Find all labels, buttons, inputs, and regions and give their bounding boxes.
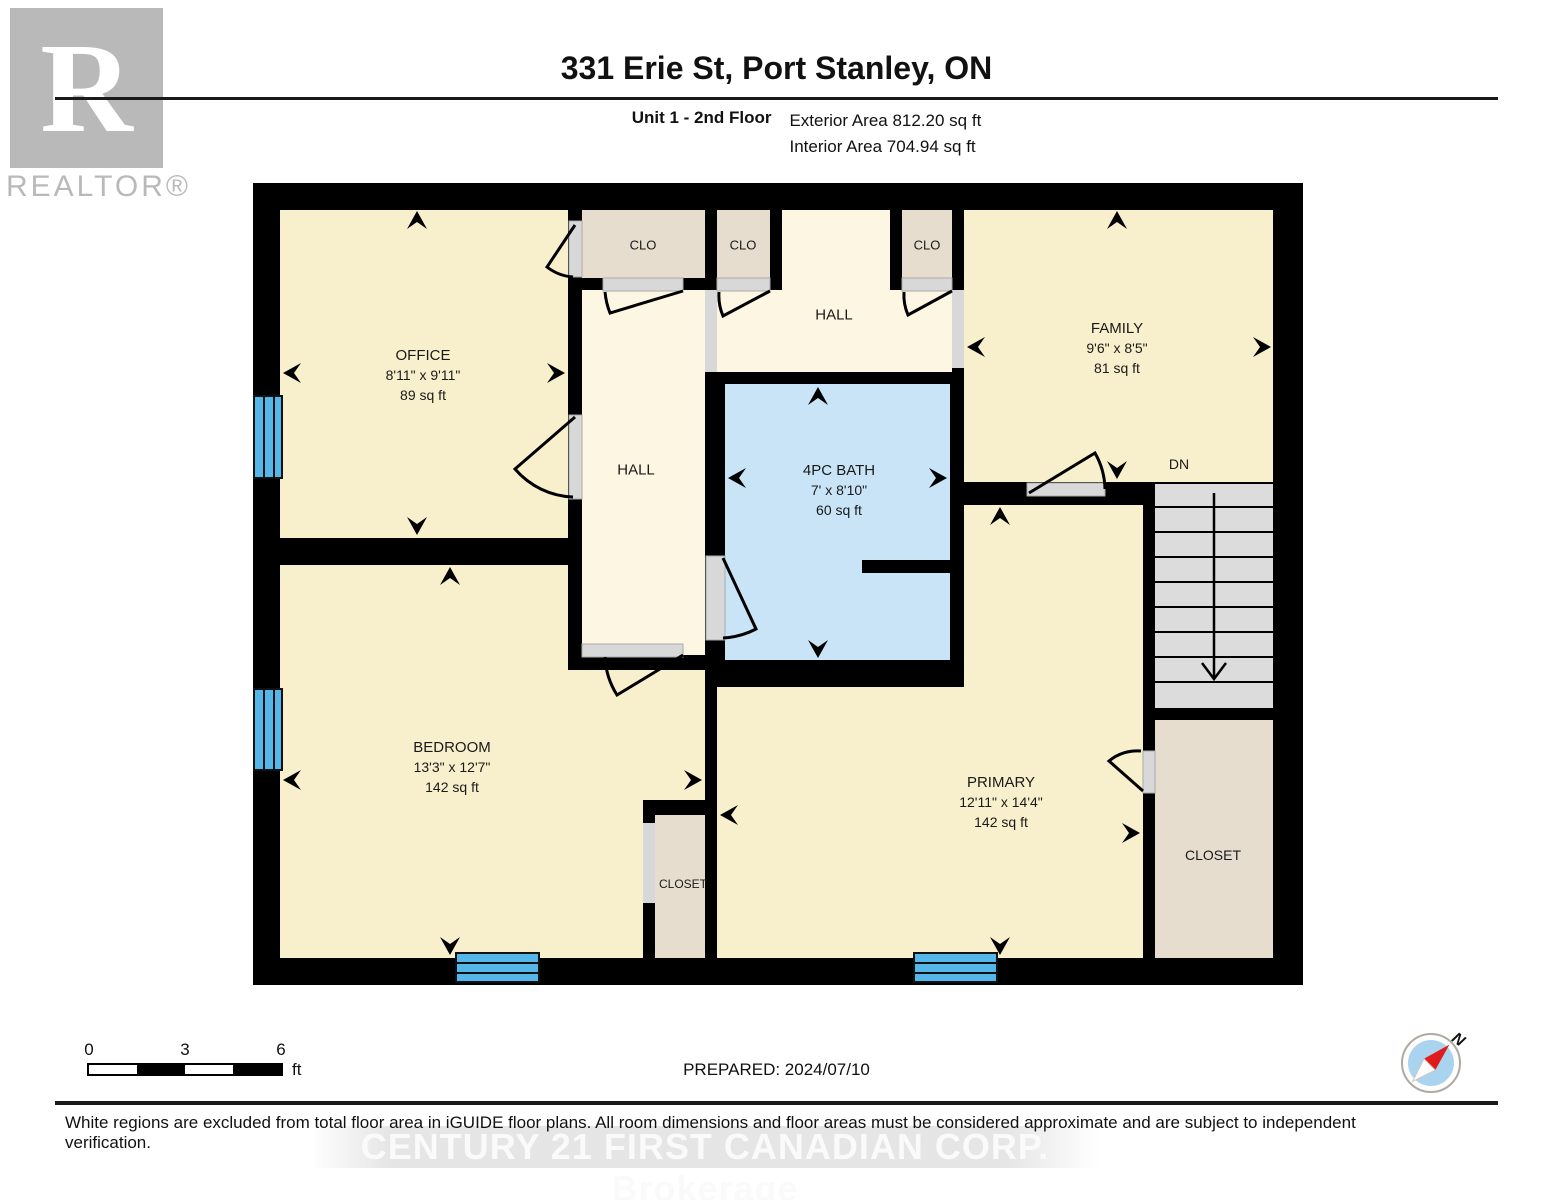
interior-area: Interior Area 704.94 sq ft [789, 134, 981, 160]
door-panel-clo2 [717, 278, 770, 291]
arrow-primary-n [990, 507, 1010, 525]
door-panel-family [1027, 483, 1105, 496]
label-primary: PRIMARY 12'11" x 14'4" 142 sq ft [959, 772, 1043, 832]
arrow-primary-s [990, 937, 1010, 955]
floor-plan: OFFICE 8'11" x 9'11" 89 sq ft CLO CLO CL… [253, 183, 1303, 985]
arrow-office-w [283, 363, 301, 383]
label-closet-bedroom: CLOSET [659, 877, 707, 891]
exterior-area: Exterior Area 812.20 sq ft [789, 108, 981, 134]
door-panel-primary-closet [1143, 751, 1155, 793]
realtor-wordmark: REALTOR® [6, 170, 206, 204]
label-bath: 4PC BATH 7' x 8'10" 60 sq ft [803, 460, 875, 520]
door-arc-bath [723, 558, 756, 638]
arrow-primary-e [1122, 823, 1140, 843]
label-family: FAMILY 9'6" x 8'5" 81 sq ft [1086, 318, 1147, 378]
scale-label-0: 0 [84, 1040, 93, 1060]
label-clo-2: CLO [730, 238, 757, 253]
door-arc-primary-closet [1109, 751, 1143, 791]
scale-label-3: 3 [180, 1040, 189, 1060]
door-arc-office-b [515, 417, 575, 497]
door-arc-bedroom [605, 655, 683, 695]
arrow-primary-w [720, 805, 738, 825]
plan-detail-layer [253, 183, 1303, 985]
arrow-family-s [1107, 461, 1127, 479]
door-arc-clo3 [904, 291, 952, 315]
footer-rule [55, 1101, 1498, 1105]
label-closet-primary: CLOSET [1185, 847, 1241, 863]
door-panel-bath [706, 556, 725, 640]
arrow-bedroom-w [283, 770, 301, 790]
scale-label-6: 6 [276, 1040, 285, 1060]
arrow-family-e [1253, 337, 1271, 357]
area-summary: Exterior Area 812.20 sq ft Interior Area… [789, 108, 981, 159]
compass-icon: N [1398, 1025, 1468, 1095]
label-stairs-dn: DN [1169, 456, 1189, 472]
floorplan-page: R REALTOR® 331 Erie St, Port Stanley, ON… [0, 0, 1553, 1200]
door-arc-clo1 [605, 291, 683, 313]
prepared-date: PREPARED: 2024/07/10 [0, 1060, 1553, 1080]
arrow-bedroom-e [684, 770, 702, 790]
label-clo-1: CLO [630, 238, 657, 253]
stairs-direction-arrow [1202, 493, 1226, 679]
unit-info-row: Unit 1 - 2nd Floor Exterior Area 812.20 … [30, 108, 1553, 159]
arrow-office-s [407, 517, 427, 535]
label-bedroom: BEDROOM 13'3" x 12'7" 142 sq ft [413, 737, 491, 797]
arrow-bath-n [808, 387, 828, 405]
label-hall-upper: HALL [815, 305, 853, 326]
arrow-family-w [967, 337, 985, 357]
page-title: 331 Erie St, Port Stanley, ON [0, 50, 1553, 87]
unit-floor-label: Unit 1 - 2nd Floor [632, 108, 772, 159]
bath-stub-wall [862, 560, 950, 573]
arrow-bath-w [728, 468, 746, 488]
arrow-office-n [407, 211, 427, 229]
arrow-bedroom-s [440, 937, 460, 955]
label-office: OFFICE 8'11" x 9'11" 89 sq ft [386, 345, 461, 405]
arrow-bath-s [808, 640, 828, 658]
door-panel-bedroom [582, 644, 683, 657]
label-clo-3: CLO [914, 238, 941, 253]
arrow-bath-e [929, 468, 947, 488]
arrow-family-n [1107, 211, 1127, 229]
arrow-bedroom-n [440, 567, 460, 585]
scale-labels: 0 3 6 [80, 1040, 295, 1058]
door-panel-clo1 [603, 278, 683, 291]
header-rule [55, 97, 1498, 100]
disclaimer-text: White regions are excluded from total fl… [65, 1113, 1415, 1153]
arrow-office-e [547, 363, 565, 383]
label-hall-vertical: HALL [617, 460, 655, 481]
door-panel-clo3 [902, 278, 952, 291]
door-panel-office-b [569, 415, 582, 499]
door-arc-clo2 [719, 291, 770, 316]
